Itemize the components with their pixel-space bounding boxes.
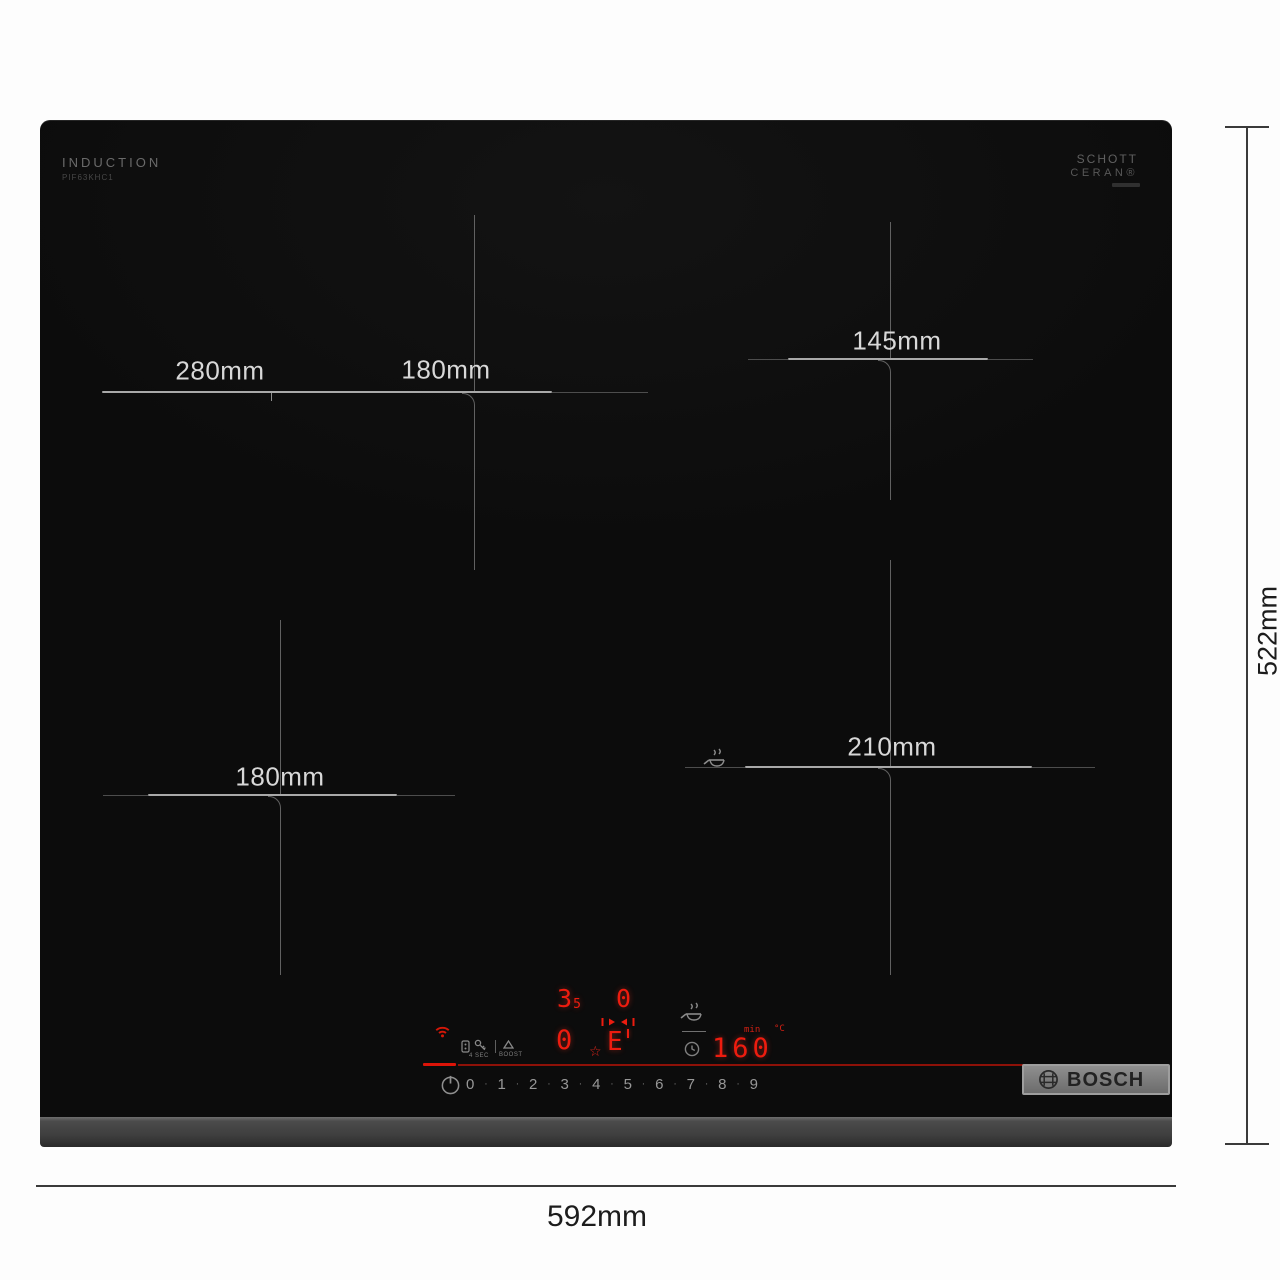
zone-front-right-vertical-line-lower	[890, 780, 891, 975]
level-separator: ·	[547, 1079, 551, 1090]
height-dimension-cap-top	[1225, 126, 1269, 128]
ceran-line: CERAN®	[1070, 167, 1138, 180]
timer-divider-line	[682, 1031, 706, 1032]
schott-line: SCHOTT	[1070, 153, 1138, 167]
power-icon	[440, 1074, 461, 1095]
power-level-8: 8	[718, 1077, 726, 1092]
power-level-6: 6	[655, 1077, 663, 1092]
zone-front-right-size-line	[745, 766, 1032, 768]
hob-glass-surface	[40, 120, 1172, 1118]
level-separator: ·	[736, 1079, 740, 1090]
level-separator: ·	[705, 1079, 709, 1090]
level-separator: ·	[516, 1079, 520, 1090]
power-level-3: 3	[561, 1077, 569, 1092]
level-separator: ·	[642, 1079, 646, 1090]
power-level-9: 9	[750, 1077, 758, 1092]
zone-size-label: 280mm	[175, 356, 264, 387]
width-dimension-label: 592mm	[547, 1200, 647, 1234]
display-front-left-level: 0	[556, 1027, 572, 1054]
zone-size-label: 145mm	[852, 326, 941, 357]
frying-sensor-panel-icon	[680, 1001, 706, 1025]
zone-size-label: 180mm	[235, 762, 324, 793]
slider-active-segment	[423, 1063, 456, 1066]
level-separator: ·	[484, 1079, 488, 1090]
zone-size-label: 210mm	[847, 732, 936, 763]
boost-icon	[503, 1040, 514, 1049]
height-dimension-label: 522mm	[1253, 586, 1280, 676]
bosch-logo-badge: BOSCH	[1022, 1064, 1170, 1095]
hob-front-trim	[40, 1117, 1172, 1147]
display-rear-right-level: 0	[616, 986, 631, 1011]
power-level-5: 5	[624, 1077, 632, 1092]
power-level-4: 4	[592, 1077, 600, 1092]
zone-rear-right-size-line-ext	[988, 359, 1033, 360]
pan-size-detect-icon	[601, 1017, 635, 1027]
product-diagram: INDUCTION PIF63KHC1 SCHOTT CERAN® 280mm …	[0, 0, 1280, 1280]
width-dimension-line	[36, 1185, 1176, 1187]
power-level-0: 0	[466, 1077, 474, 1092]
level-separator: ·	[579, 1079, 583, 1090]
key-lock-icon	[474, 1039, 486, 1052]
zone-rear-right-vertical-line-lower	[890, 372, 891, 500]
star-icon: ☆	[589, 1045, 602, 1059]
height-dimension-line	[1246, 127, 1248, 1145]
lock-hold-label: 4 SEC	[469, 1053, 489, 1059]
led-sub-segment	[627, 1029, 629, 1038]
zone-front-left-size-line-ext	[103, 795, 148, 796]
bosch-logo-text: BOSCH	[1067, 1070, 1144, 1090]
boost-label: BOOST	[499, 1052, 523, 1058]
zone-rear-right-size-line-ext	[748, 359, 788, 360]
unit-temp-label: °C	[774, 1025, 785, 1034]
bosch-emblem-icon	[1038, 1069, 1059, 1090]
zone-front-left-size-line-ext	[397, 795, 455, 796]
zone-rear-left-size-line	[102, 391, 552, 393]
zone-rear-left-size-line-ext	[552, 392, 648, 393]
power-level-7: 7	[687, 1077, 695, 1092]
display-rear-left-level: 3 5	[557, 986, 581, 1011]
zone-front-left-vertical-line-lower	[280, 808, 281, 975]
zone-rear-left-vertical-line-lower	[474, 405, 475, 570]
induction-print-label: INDUCTION	[62, 155, 161, 170]
zone-rear-left-divider-tick	[271, 393, 272, 401]
display-front-right-symbol: E	[607, 1029, 623, 1055]
power-level-1: 1	[498, 1077, 506, 1092]
level-separator: ·	[610, 1079, 614, 1090]
schott-ceran-logo: SCHOTT CERAN®	[1070, 153, 1138, 179]
power-level-row: 0 · 1 · 2 · 3 · 4 · 5 · 6 · 7 · 8 · 9	[466, 1075, 758, 1093]
zone-size-label: 180mm	[401, 355, 490, 386]
level-separator: ·	[673, 1079, 677, 1090]
slider-track-segment	[458, 1064, 1035, 1066]
frying-sensor-print-icon	[703, 748, 729, 770]
led-digit: 3	[557, 986, 572, 1011]
wifi-icon	[435, 1025, 450, 1038]
led-digit-small: 5	[573, 998, 581, 1011]
zone-front-right-size-line-ext	[1032, 767, 1095, 768]
schott-fine-print	[1112, 183, 1140, 187]
height-dimension-cap-bottom	[1225, 1143, 1269, 1145]
zone-rear-right-size-line	[788, 358, 988, 360]
display-timer-value: 160	[712, 1035, 773, 1062]
model-code-label: PIF63KHC1	[62, 173, 114, 182]
panel-divider	[495, 1040, 496, 1053]
power-level-2: 2	[529, 1077, 537, 1092]
pan-grid-icon	[461, 1040, 470, 1053]
clock-icon	[684, 1041, 700, 1057]
